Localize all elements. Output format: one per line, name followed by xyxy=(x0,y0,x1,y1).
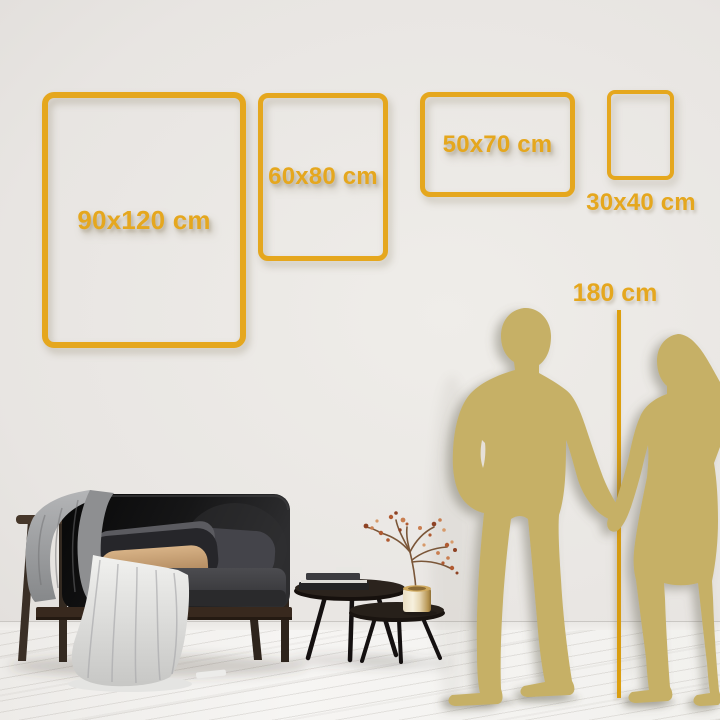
frame-size-label-90x120: 90x120 cm xyxy=(77,207,210,233)
height-reference-label: 180 cm xyxy=(553,281,677,306)
frame-50x70: 50x70 cm xyxy=(420,92,575,197)
frame-90x120: 90x120 cm xyxy=(42,92,246,348)
frame-60x80: 60x80 cm xyxy=(258,93,388,261)
poster-size-guide-scene: 90x120 cm 60x80 cm 50x70 cm 30x40 cm 180… xyxy=(0,0,720,720)
height-measure-line xyxy=(617,310,621,698)
wood-floor xyxy=(0,630,720,720)
frame-30x40 xyxy=(607,90,674,180)
frame-size-label-50x70: 50x70 cm xyxy=(443,133,553,157)
frame-size-label-30x40: 30x40 cm xyxy=(576,191,706,215)
frame-size-label-60x80: 60x80 cm xyxy=(268,165,378,189)
